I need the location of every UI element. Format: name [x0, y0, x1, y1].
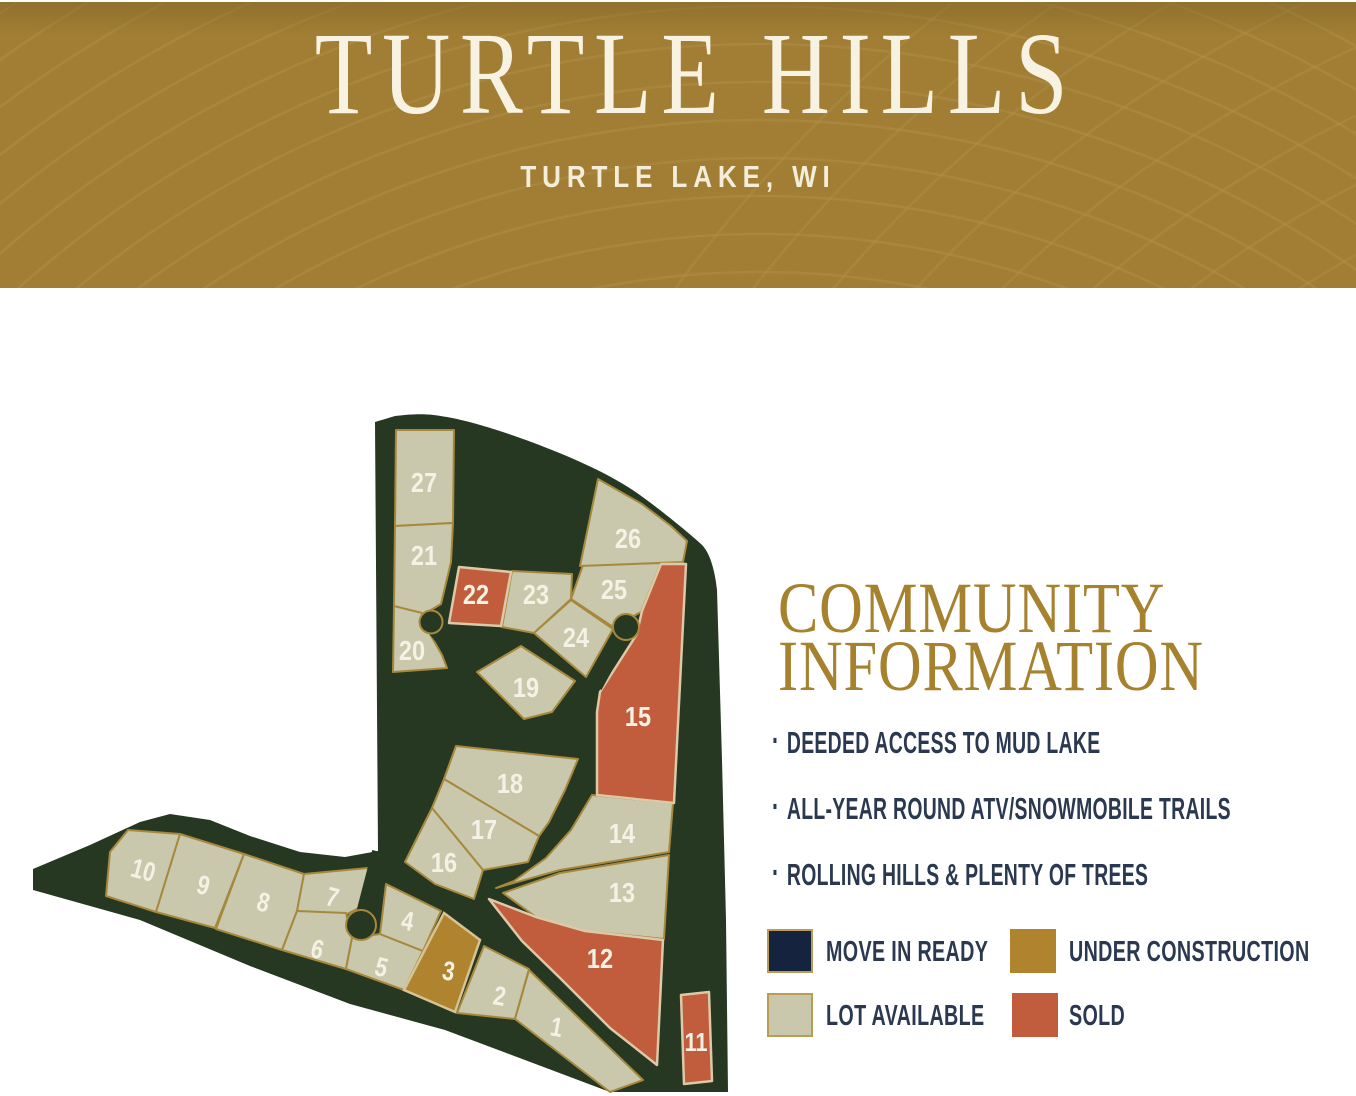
svg-text:21: 21 — [411, 541, 437, 571]
svg-text:15: 15 — [625, 702, 651, 732]
svg-text:18: 18 — [497, 769, 523, 799]
svg-text:26: 26 — [615, 524, 641, 554]
svg-text:11: 11 — [684, 1028, 707, 1057]
svg-text:19: 19 — [513, 673, 539, 703]
svg-text:17: 17 — [471, 815, 497, 845]
svg-text:20: 20 — [399, 636, 425, 666]
svg-text:27: 27 — [411, 468, 437, 498]
svg-text:22: 22 — [463, 580, 489, 610]
svg-text:25: 25 — [601, 575, 627, 605]
svg-text:14: 14 — [609, 819, 636, 849]
svg-text:13: 13 — [609, 878, 635, 908]
svg-text:16: 16 — [431, 848, 457, 878]
svg-text:12: 12 — [587, 944, 613, 974]
svg-text:24: 24 — [563, 623, 590, 653]
svg-text:23: 23 — [523, 580, 549, 610]
